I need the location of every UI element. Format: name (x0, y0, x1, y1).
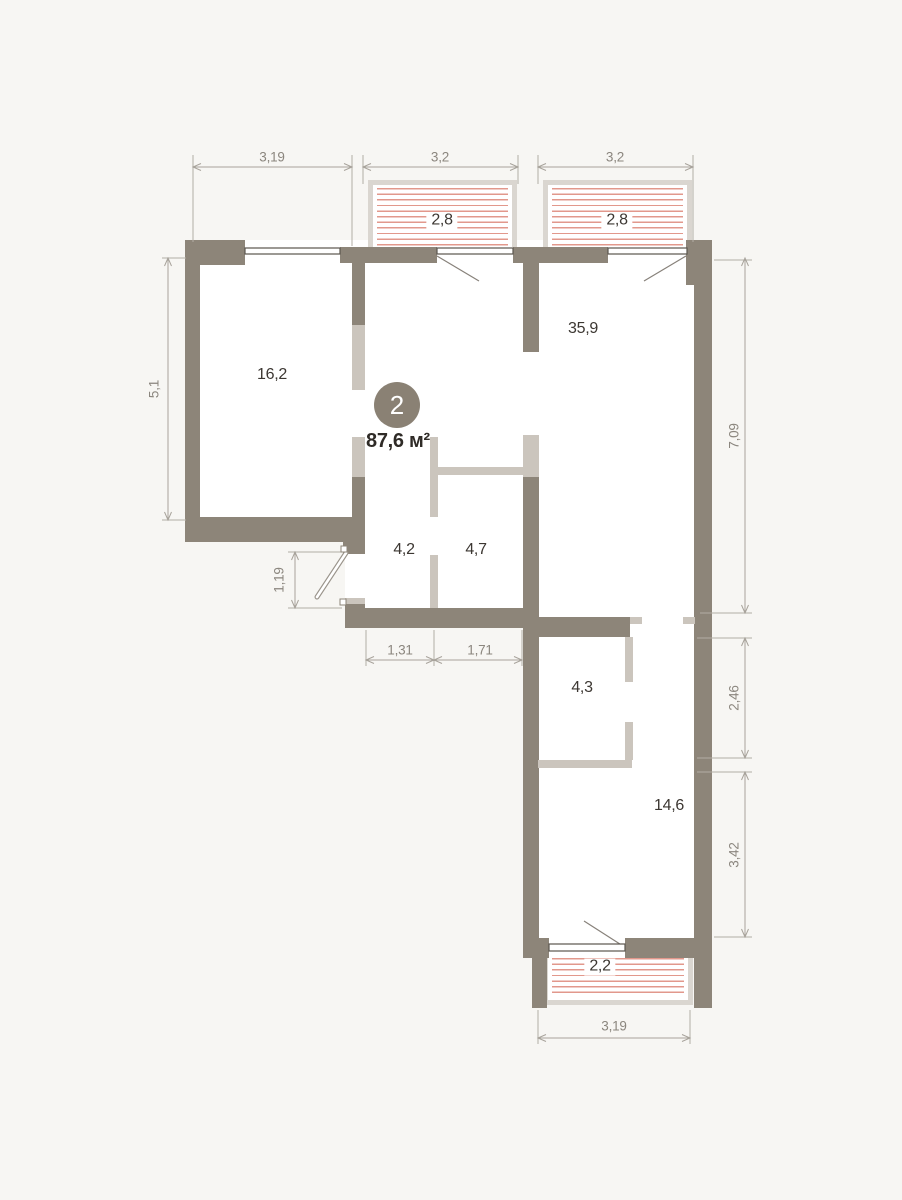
room-label-bedroom: 16,2 (257, 366, 287, 384)
dim-bottom-width: 3,19 (601, 1019, 626, 1034)
dim-top-3: 3,2 (606, 150, 624, 165)
entry-door-leaf (317, 546, 347, 605)
balcony-label-top-right: 2,8 (601, 213, 632, 230)
dim-right-3: 3,42 (727, 842, 742, 867)
dim-top-2: 3,2 (431, 150, 449, 165)
room-label-living: 35,9 (568, 320, 598, 338)
dimension-lines (168, 167, 745, 1038)
extension-lines (162, 155, 752, 1044)
balcony-label-bottom: 2,2 (584, 959, 615, 976)
dim-right-2: 2,46 (727, 685, 742, 710)
dim-right-1: 7,09 (727, 423, 742, 448)
dimension-lines-layer (0, 0, 902, 1200)
room-label-hall: 4,2 (393, 541, 414, 559)
room-label-bedroom2: 14,6 (654, 797, 684, 815)
unit-number-badge: 2 (374, 382, 420, 428)
floor-plan: 16,2 35,9 4,2 4,7 4,3 14,6 2,8 2,8 2,2 3… (0, 0, 902, 1200)
total-area-label: 87,6 м² (366, 430, 430, 453)
dim-hall-1: 1,31 (387, 643, 412, 658)
dim-top-1: 3,19 (259, 150, 284, 165)
room-label-bathroom: 4,3 (571, 679, 592, 697)
windows (245, 248, 687, 951)
dim-entry-width: 1,19 (272, 567, 287, 592)
room-label-wardrobe: 4,7 (465, 541, 486, 559)
dim-left-height: 5,1 (147, 380, 162, 398)
dimension-arrows (165, 164, 749, 1042)
door-swings (437, 256, 686, 946)
balcony-label-top-left: 2,8 (426, 213, 457, 230)
dim-hall-2: 1,71 (467, 643, 492, 658)
